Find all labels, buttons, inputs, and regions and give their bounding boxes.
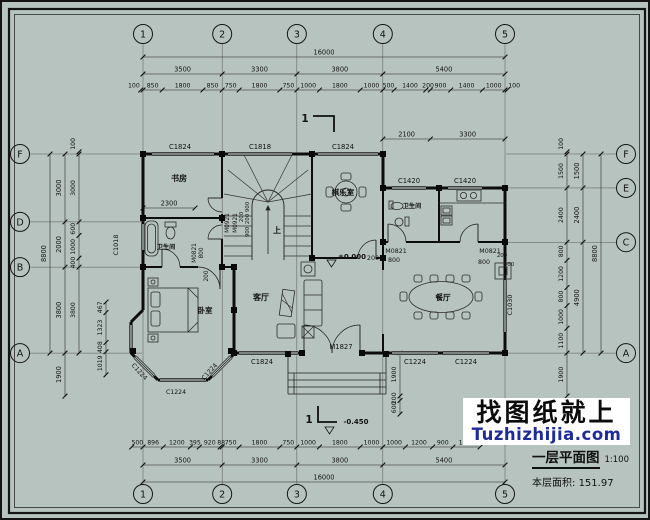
dim-bot-det-4: 920 [204,439,216,446]
dim-bot-span-3: 5400 [436,456,453,464]
rooms-bath-left: 卫生间 [157,243,176,251]
dim-bot-span-2: 3800 [331,456,348,464]
dim-bot-det-11: 1000 [364,439,380,446]
ann-win-c1818-top-stair: C1818 [249,143,271,151]
dim-study-width-0: 2300 [161,199,178,207]
dim-porch-0: 1900 [391,367,398,383]
dim-left-bay-1: 1323 [97,320,104,336]
levels-porch: -0.450 [343,418,368,426]
levels-main: ±0.000 [338,253,366,261]
dim-left-det-2: 600 [70,223,77,235]
dim-bot-total-0: 16000 [314,473,335,481]
ann-dim-200-kitchen: 200 [497,253,508,259]
watermark-box: 找图纸就上 Tuzhizhijia.com [463,398,630,445]
dim-top-sub-1: 3300 [459,130,476,138]
ann-win-c1824-top-study: C1824 [169,143,191,151]
dim-top-span-3: 5400 [436,65,453,73]
symbols [313,116,337,434]
grid-col-bottom-1: 1 [140,489,146,500]
title-block: 一层平面图 1:100 本层面积: 151.97 [532,446,647,489]
dim-top-det-12: 200 [422,82,434,89]
dim-top-det-2: 1800 [175,82,191,89]
floor-plan-sheet: 1600035003300380054001008501800850750180… [0,0,650,520]
dim-bot-det-0: 500 [131,439,143,446]
watermark-site-link[interactable]: Tuzhizhijia.com [472,426,622,443]
ann-dim-200-bed: 200 [204,270,210,281]
dim-right-span-0: 1500 [573,163,581,180]
grid-col-top-4: 4 [380,29,386,40]
ann-win-c1224-bottom-d1: C1224 [404,358,426,366]
grid-col-top-2: 2 [219,29,225,40]
area-value: 151.97 [579,478,614,489]
dim-left-det-5: 3800 [70,302,77,318]
ann-win-c1030-right: C1030 [506,294,514,315]
dim-top-sub-0: 2100 [398,130,415,138]
dim-left-det-1: 3000 [70,180,77,196]
grid-row-left-1: D [16,217,23,228]
ann-win-c1224-bay-bottom: C1224 [166,389,186,396]
dim-right-det-1: 1500 [558,163,565,179]
dim-right-span-2: 4900 [573,289,581,306]
rooms-bath-right: 卫生间 [403,202,422,210]
dim-bot-det-10: 1800 [332,439,348,446]
dim-right-det-0: 100 [558,138,565,150]
rooms-dining: 餐厅 [435,292,451,302]
dim-left-bay-3: 1019 [97,355,104,371]
dim-bot-det-12: 1000 [386,439,402,446]
dim-right-det-5: 800 [558,291,565,303]
grid-row-right-3: A [623,349,630,360]
dim-top-det-7: 1000 [300,82,316,89]
grid-row-right-2: C [623,238,630,249]
grid-col-bottom-3: 3 [294,489,300,500]
ann-door-m0821-bath-left: M0821 [192,243,198,263]
dim-right-det-6: 1000 [558,309,565,325]
ann-dim-800-bath: 800 [388,257,400,264]
grid-col-top-5: 5 [502,29,508,40]
ann-door-m1827: M1827 [329,343,352,351]
ann-win-c1420-kitchen: C1420 [454,177,476,185]
dim-left-bay-2: 408 [97,341,104,353]
rooms-study: 书房 [171,173,187,183]
grid-row-left-0: F [17,149,22,160]
dim-top-span-1: 3300 [251,65,268,73]
dim-left-outer-0: 8800 [40,245,48,262]
grid-row-left-3: A [17,349,24,360]
dim-top-det-10: 500 [383,82,395,89]
dim-bot-det-9: 1000 [300,439,316,446]
ann-dim-900-a: 900 [245,201,251,212]
staircase [224,155,312,260]
dim-bot-det-14: 900 [437,439,449,446]
rooms-bedroom: 卧室 [198,305,213,315]
ann-win-c1018-left: C1018 [112,234,120,255]
dim-right-det-2: 2400 [558,207,565,223]
ann-door-m0821-bath: M0821 [385,248,406,255]
rooms-living: 客厅 [252,292,269,302]
dim-top-span-0: 3500 [174,65,191,73]
dim-top-det-15: 1000 [486,82,502,89]
dim-porch-2: 600 [391,401,398,413]
dim-right-det-4: 1200 [558,266,565,282]
dim-top-det-13: 900 [435,82,447,89]
dim-top-det-1: 850 [147,82,159,89]
dim-left-span-1: 2000 [55,236,63,253]
dim-bot-det-3: 395 [189,439,201,446]
dim-top-det-14: 1400 [459,82,475,89]
dim-bot-span-0: 3500 [174,456,191,464]
dim-left-det-4: 400 [70,257,77,269]
dim-top-det-5: 1800 [252,82,268,89]
dim-left-span-2: 3800 [55,302,63,319]
dim-right-det-8: 1900 [558,367,565,383]
dim-bot-det-2: 1200 [169,439,185,446]
ann-dim-800-bath-left: 800 [199,247,205,258]
dim-bot-span-1: 3300 [251,456,268,464]
dim-top-det-11: 1400 [402,82,418,89]
grid-row-left-2: B [17,263,24,274]
dim-right-span-1: 2400 [573,207,581,224]
grid-col-bottom-4: 4 [380,489,386,500]
ann-door-m0921-a: M0921 [225,213,231,233]
grid-col-top-1: 1 [140,29,146,40]
dim-top-det-9: 1000 [364,82,380,89]
drawing-scale: 1:100 [605,455,630,465]
ann-win-c1824-bottom-living: C1824 [251,358,273,366]
dim-bot-det-6: 750 [225,439,237,446]
dim-left-det-0: 100 [70,138,77,150]
stair-up: 上 [273,225,281,235]
dim-top-det-6: 750 [282,82,294,89]
ann-win-c1224-bottom-d2: C1224 [455,358,477,366]
ann-dim-200-mid: 200 [245,213,251,224]
watermark-text: 找图纸就上 [476,400,616,426]
dim-left-span-0: 3000 [55,180,63,197]
drawing-title: 一层平面图 [532,446,600,469]
dim-top-det-16: 100 [508,82,520,89]
dim-bot-det-7: 1800 [252,439,268,446]
dim-right-det-7: 1100 [558,333,565,349]
grid-col-top-3: 3 [294,29,300,40]
ann-dim-400-kitchen: 400 [504,262,515,268]
dim-top-det-3: 850 [207,82,219,89]
grid-row-right-1: E [623,183,629,194]
grid-row-right-0: F [623,149,628,160]
ann-dim-800-kitchen: 800 [478,259,490,266]
dim-bot-det-8: 750 [282,439,294,446]
sections-top: 1 [301,113,308,125]
area-label: 本层面积: [532,478,575,489]
rooms-game: 棋乐室 [332,187,355,197]
sections-bottom: 1 [305,414,312,426]
dim-left-span-3: 1900 [55,366,63,383]
ann-dim-900-b: 900 [245,226,251,237]
dim-top-span-2: 3800 [331,65,348,73]
dim-top-det-8: 1800 [332,82,348,89]
dim-top-det-4: 750 [225,82,237,89]
grid-col-bottom-2: 2 [219,489,225,500]
ann-win-c1420-bath: C1420 [398,177,420,185]
ann-win-c1824-top-game: C1824 [332,143,354,151]
dim-right-outer-0: 8800 [591,245,599,262]
ann-dim-200-entry: 200 [367,254,379,262]
dim-right-det-3: 800 [558,245,565,257]
dim-left-det-3: 1000 [70,239,77,255]
dim-bot-det-1: 896 [147,439,159,446]
dim-left-bay-0: 467 [97,301,104,313]
dim-top-det-0: 100 [128,82,140,89]
dim-top-total-0: 16000 [314,48,335,56]
dim-bot-det-13: 1200 [411,439,427,446]
grid-col-bottom-5: 5 [502,489,508,500]
